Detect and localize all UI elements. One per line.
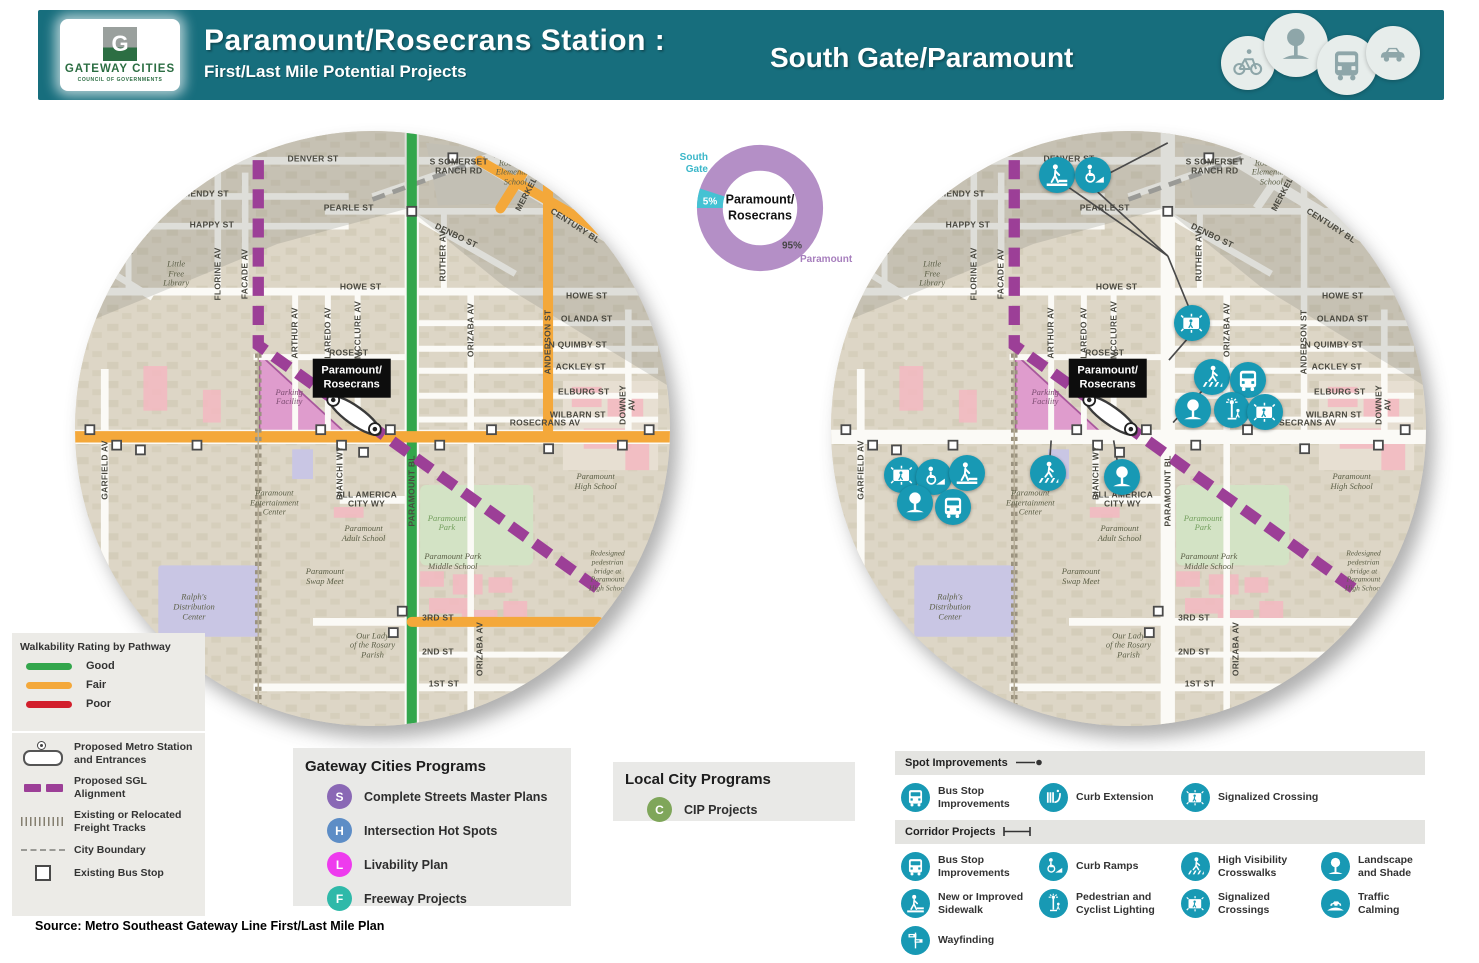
projects-section-title: Corridor Projects [905,826,995,838]
project-legend-item: High Visibility Crosswalks [1181,852,1321,881]
gateway-cities-logo: G GATEWAY CITIES COUNCIL OF GOVERNMENTS [60,19,180,91]
header-titles: Paramount/Rosecrans Station : First/Last… [204,24,665,82]
station-entrance-dot [37,741,46,750]
program-legend-row: HIntersection Hot Spots [327,818,571,843]
gateway-programs-legend: Gateway Cities Programs SComplete Street… [293,748,571,906]
freight-hatch [21,817,65,826]
tree-icon [902,490,928,516]
project-label: New or Improved Sidewalk [938,891,1039,916]
walkability-legend-row: Poor [26,698,205,710]
source-citation: Source: Metro Southeast Gateway Line Fir… [35,919,384,933]
city-share-donut-chart: Paramount/ Rosecrans 5% 95% South Gate P… [652,126,866,302]
project-legend-item: Signalized Crossings [1181,889,1321,918]
car-icon [1366,26,1420,80]
sgl-alignment-icon [12,784,74,792]
sgl-dash [46,784,63,792]
station-oval [23,750,63,766]
freight-tracks-icon [12,817,74,826]
sidewalk-marker-icon [949,455,985,491]
project-legend-item: Curb Ramps [1039,852,1181,881]
wayfinding-icon [905,930,926,951]
bus-stop-square [35,865,51,881]
project-legend-item: Signalized Crossing [1181,783,1321,812]
tree-icon [1325,856,1346,877]
tree-icon [1321,852,1350,881]
curb-ramp-icon [1080,162,1106,188]
logo-g-icon: G [103,27,137,61]
corridor-marker-icon [1003,823,1031,841]
basemap-graphic [831,131,1426,726]
project-label: Signalized Crossings [1218,891,1321,916]
tree-marker-icon [897,485,933,521]
signal-marker-icon [1247,394,1283,430]
projects-map: DENVER STS SOMERSET RANCH RDMENDY STPEAR… [831,131,1426,726]
page-subtitle: First/Last Mile Potential Projects [204,62,665,82]
tree-marker-icon [1175,392,1211,428]
south-gate-label: South Gate [652,152,708,175]
header-banner: G GATEWAY CITIES COUNCIL OF GOVERNMENTS … [38,10,1444,100]
lighting-marker-icon [1214,392,1250,428]
bus-stop-icon [12,865,74,881]
tree-marker-icon [1104,459,1140,495]
sidewalk-marker-icon [1039,157,1075,193]
project-label: Signalized Crossing [1218,791,1318,804]
project-label: Curb Ramps [1076,860,1138,873]
signal-icon [1185,787,1206,808]
curb-ramp-icon [921,464,947,490]
bus-icon [901,852,930,881]
lighting-icon [1043,893,1064,914]
bus-icon [905,856,926,877]
signal-icon [1252,399,1278,425]
local-programs-title: Local City Programs [625,771,855,788]
program-legend-row: FFreeway Projects [327,886,571,911]
crosswalk-marker-icon [1030,455,1066,491]
south-gate-percent: 5% [703,197,717,208]
symbol-legend-label: Proposed Metro Station and Entrances [74,741,192,766]
paramount-percent: 95% [782,241,802,252]
symbol-legend-label: City Boundary [74,844,146,857]
walkability-color-bar [26,701,72,708]
project-label: Bus Stop Improvements [938,785,1039,810]
sgl-dash [24,784,41,792]
project-legend-item: Pedestrian and Cyclist Lighting [1039,889,1181,918]
signal-icon [1181,783,1210,812]
walkability-legend-row: Good [26,660,205,672]
curb-ramp-marker-icon [1075,157,1111,193]
local-programs-legend: Local City Programs CCIP Projects [613,762,855,821]
project-label: Pedestrian and Cyclist Lighting [1076,891,1181,916]
symbol-legend-label: Proposed SGL Alignment [74,775,147,800]
walkability-legend: Walkability Rating by Pathway GoodFairPo… [12,633,205,731]
project-label: Traffic Calming [1358,891,1431,916]
project-label: Landscape and Shade [1358,854,1431,879]
projects-section-title: Spot Improvements [905,757,1008,769]
page-title: Paramount/Rosecrans Station : [204,24,665,58]
sidewalk-icon [1044,162,1070,188]
crosswalk-icon [1035,460,1061,486]
symbol-legend-label: Existing Bus Stop [74,867,164,880]
program-label: Complete Streets Master Plans [364,790,547,804]
walkability-color-bar [26,663,72,670]
wayfinding-icon [901,926,930,955]
program-legend-row: LLivability Plan [327,852,571,877]
bus-marker-icon [935,489,971,525]
sidewalk-icon [954,460,980,486]
walkability-legend-title: Walkability Rating by Pathway [20,641,205,653]
spot-marker-icon [1016,754,1044,772]
boundary-dash [21,849,65,851]
project-legend-item: Landscape and Shade [1321,852,1431,881]
program-legend-row: CCIP Projects [647,797,855,822]
crosswalk-icon [1199,364,1225,390]
program-letter-icon: S [327,784,352,809]
projects-section-header: Corridor Projects [895,820,1425,844]
symbol-legend-row: Existing or Relocated Freight Tracks [12,809,205,834]
curb-ramp-icon [1043,856,1064,877]
sidewalk-icon [905,893,926,914]
curb-ramp-icon [1039,852,1068,881]
traffic-calming-icon [1321,889,1350,918]
program-letter-icon: L [327,852,352,877]
signal-icon [889,462,915,488]
curb-extension-icon [1043,787,1064,808]
curb-extension-icon [1039,783,1068,812]
metro-station-icon [12,741,74,766]
project-legend-item: Wayfinding [901,926,1039,955]
program-legend-row: SComplete Streets Master Plans [327,784,571,809]
lighting-icon [1219,397,1245,423]
metro-station-glyph [23,741,63,766]
traffic-calming-icon [1325,893,1346,914]
bus-icon [940,494,966,520]
program-label: Intersection Hot Spots [364,824,497,838]
crosswalk-icon [1185,856,1206,877]
crosswalk-marker-icon [1194,359,1230,395]
walkability-color-bar [26,682,72,689]
signal-icon [1181,889,1210,918]
projects-items-grid: Bus Stop ImprovementsCurb RampsHigh Visi… [895,848,1425,963]
station-name-label: Paramount/ Rosecrans [1068,359,1147,398]
walkability-legend-row: Fair [26,679,205,691]
symbol-legend-row: City Boundary [12,844,205,857]
donut-center-label: Paramount/ Rosecrans [726,192,795,223]
program-letter-icon: H [327,818,352,843]
sgl-dashes [24,784,63,792]
bus-icon [1235,367,1261,393]
signal-icon [1179,310,1205,336]
walkability-rating-label: Poor [86,698,111,710]
project-label: Bus Stop Improvements [938,854,1039,879]
projects-section-header: Spot Improvements [895,751,1425,775]
program-letter-icon: F [327,886,352,911]
project-legend-item: Bus Stop Improvements [901,783,1039,812]
signal-icon [1185,893,1206,914]
symbol-legend-row: Existing Bus Stop [12,865,205,881]
bus-icon [901,783,930,812]
mode-icons-group [1232,10,1420,100]
symbol-legend-label: Existing or Relocated Freight Tracks [74,809,181,834]
project-legend-item: Traffic Calming [1321,889,1431,918]
program-label: Livability Plan [364,858,448,872]
symbol-legend-row: Proposed SGL Alignment [12,775,205,800]
crosswalk-icon [1181,852,1210,881]
logo-org-text: GATEWAY CITIES [65,63,175,75]
tree-icon [1180,397,1206,423]
project-label: High Visibility Crosswalks [1218,854,1321,879]
program-letter-icon: C [647,797,672,822]
project-legend-item: New or Improved Sidewalk [901,889,1039,918]
signal-marker-icon [1174,305,1210,341]
walkability-rating-label: Fair [86,679,106,691]
gateway-programs-title: Gateway Cities Programs [305,758,571,775]
projects-items-grid: Bus Stop ImprovementsCurb ExtensionSigna… [895,779,1425,820]
symbol-legend-row: Proposed Metro Station and Entrances [12,741,205,766]
station-name-label: Paramount/ Rosecrans [312,359,391,398]
project-legend-item: Curb Extension [1039,783,1181,812]
projects-legend: Spot ImprovementsBus Stop ImprovementsCu… [895,751,1425,963]
lighting-icon [1039,889,1068,918]
project-label: Wayfinding [938,934,994,947]
tree-icon [1109,464,1135,490]
program-label: CIP Projects [684,803,757,817]
map-symbols-legend: Proposed Metro Station and EntrancesProp… [12,733,205,916]
city-boundary-icon [12,849,74,851]
bus-icon [905,787,926,808]
walkability-rating-label: Good [86,660,115,672]
project-label: Curb Extension [1076,791,1154,804]
program-label: Freeway Projects [364,892,467,906]
region-title: South Gate/Paramount [770,42,1073,74]
sidewalk-icon [901,889,930,918]
paramount-label: Paramount [800,254,852,265]
project-legend-item: Bus Stop Improvements [901,852,1039,881]
logo-sub-text: COUNCIL OF GOVERNMENTS [78,77,163,83]
